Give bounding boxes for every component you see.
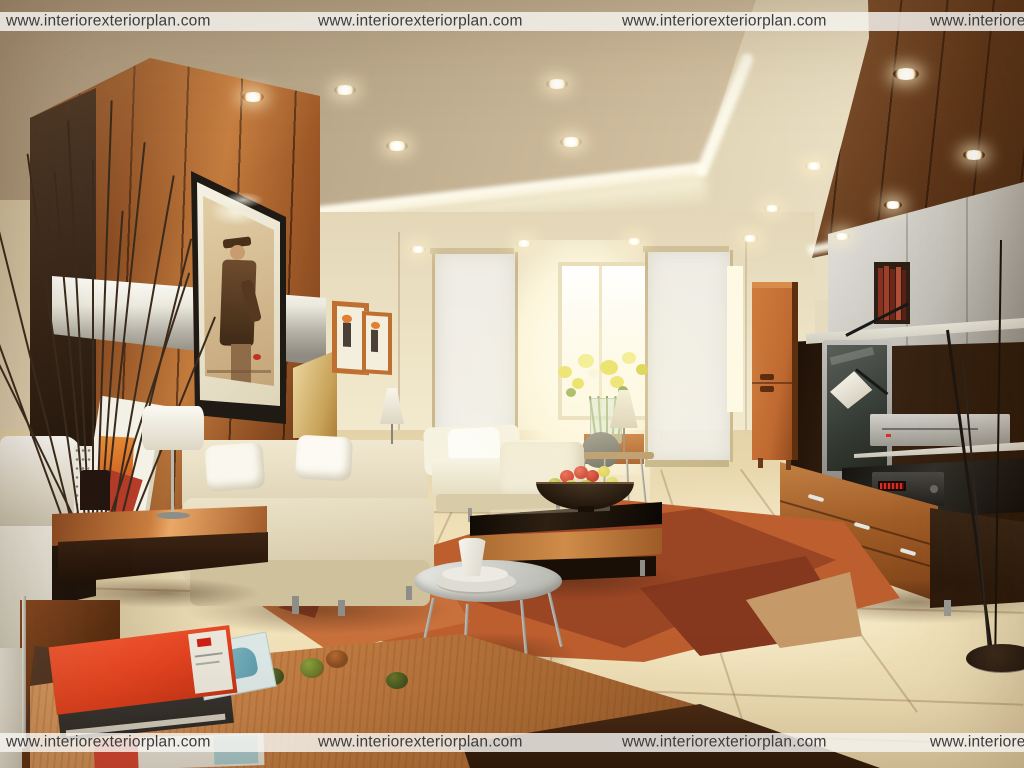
fruit-bowl-foot <box>578 506 594 512</box>
table-lamp-shade <box>142 406 204 450</box>
recessed-light <box>764 205 780 212</box>
watermark-band-bottom: www.interiorexteriorplan.com www.interio… <box>0 733 1024 752</box>
twig <box>92 160 94 520</box>
watermark-text: www.interiorexteriorplan.com <box>930 12 1024 30</box>
window-slit <box>727 266 743 412</box>
recessed-light <box>516 240 532 247</box>
sofa-pillow <box>295 435 353 482</box>
flower <box>578 354 594 368</box>
small-frame-accent <box>342 314 352 323</box>
recessed-light <box>626 238 642 245</box>
receiver-knob <box>930 485 938 493</box>
flower <box>558 366 572 378</box>
coffee-table-leg <box>640 560 645 576</box>
mango <box>300 658 324 678</box>
art-ground-line <box>207 370 271 373</box>
dvd-led <box>886 434 891 437</box>
flower <box>636 364 648 375</box>
sheer-panel-right <box>645 250 733 462</box>
cabinet-side-dark <box>792 282 798 460</box>
watermark-text: www.interiorexteriorplan.com <box>6 733 211 751</box>
cabinet-handle <box>760 386 774 392</box>
sofa-pillow <box>204 442 265 492</box>
recessed-light <box>560 137 582 147</box>
leaf <box>566 388 576 397</box>
cabinet-handle <box>760 374 774 380</box>
recessed-light <box>410 246 426 253</box>
flower <box>622 352 636 364</box>
watermark-text: www.interiorexteriorplan.com <box>318 733 523 751</box>
small-frame-accent <box>371 322 380 330</box>
art-figure-head <box>230 245 245 260</box>
sofa-leg <box>292 596 299 614</box>
open-shelf-slot <box>874 262 910 324</box>
spine-logo <box>197 638 212 648</box>
spine-text-line <box>195 652 223 657</box>
dvd-player <box>870 414 1010 446</box>
living-room-render: www.interiorexteriorplan.com www.interio… <box>0 0 1024 768</box>
small-frame-figure <box>343 322 351 347</box>
watermark-band-top: www.interiorexteriorplan.com www.interio… <box>0 12 1024 31</box>
orange-cabinet <box>752 282 798 460</box>
tv <box>822 340 892 482</box>
watermark-text: www.interiorexteriorplan.com <box>622 12 827 30</box>
mango <box>326 650 348 668</box>
flower <box>588 368 599 378</box>
sheer-rail <box>430 248 514 254</box>
recessed-light <box>546 79 568 89</box>
drawer-handle <box>900 548 916 556</box>
flower <box>572 378 584 389</box>
watermark-text: www.interiorexteriorplan.com <box>930 733 1024 751</box>
recessed-light <box>884 201 902 209</box>
cabinet-leg <box>758 458 763 468</box>
watermark-text: www.interiorexteriorplan.com <box>622 733 827 751</box>
watermark-text: www.interiorexteriorplan.com <box>6 12 211 30</box>
recessed-light <box>834 233 850 240</box>
watermark-text: www.interiorexteriorplan.com <box>318 12 523 30</box>
floor-lamp-small-stem <box>391 424 393 444</box>
spine-text-line <box>196 661 220 666</box>
flower-bouquet <box>548 348 652 406</box>
console-leg <box>944 600 951 616</box>
sheer-rail <box>643 246 729 252</box>
fruit <box>598 466 610 477</box>
art-figure-legs <box>231 344 251 386</box>
table-lamp-stem <box>171 450 174 514</box>
drawer-handle <box>808 494 824 502</box>
sofa-leg <box>338 600 345 616</box>
book-spine <box>878 268 883 320</box>
recessed-light <box>893 68 919 80</box>
small-frame-2 <box>362 311 392 375</box>
recessed-light <box>386 141 408 151</box>
planter-bowl <box>582 432 620 468</box>
avocado <box>386 672 408 689</box>
sofa-leg <box>406 586 412 600</box>
recessed-light <box>805 162 823 170</box>
receiver-digits <box>880 483 904 489</box>
flower <box>600 360 618 375</box>
sheer-rail <box>645 460 729 467</box>
small-frame-figure <box>371 330 378 352</box>
dvd-slot <box>882 428 978 430</box>
cabinet-leg <box>786 460 791 470</box>
book-spine <box>896 267 901 320</box>
recessed-light <box>742 235 758 242</box>
recessed-light <box>242 92 264 102</box>
twig-vase <box>80 470 110 510</box>
recessed-light <box>963 150 985 160</box>
receiver-display <box>878 481 906 491</box>
book-spine-band <box>188 630 233 694</box>
tv-screen <box>827 345 887 471</box>
table-lamp-base <box>156 512 190 519</box>
art-red-bird <box>253 354 261 360</box>
book-spine <box>902 270 906 320</box>
recessed-light <box>334 85 356 95</box>
side-table-top <box>576 452 654 459</box>
drawer-handle <box>854 522 870 530</box>
